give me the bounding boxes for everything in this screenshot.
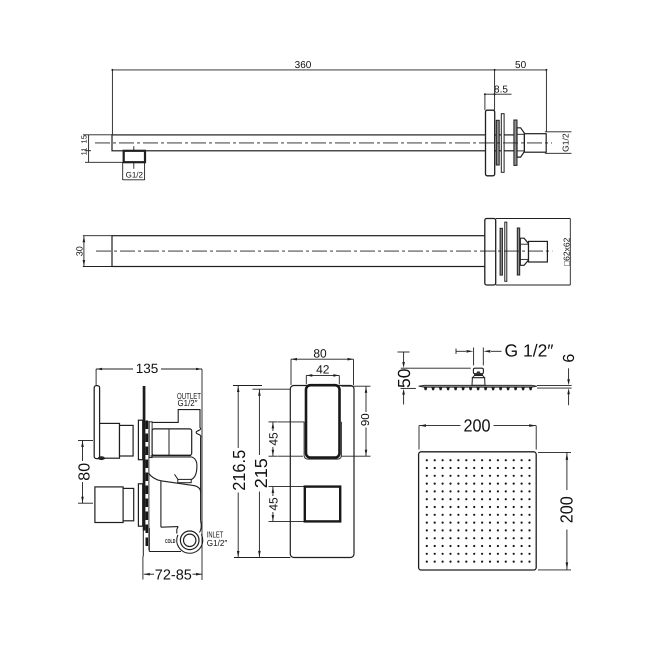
svg-text:200: 200 [464, 415, 491, 435]
svg-text:72-85: 72-85 [155, 567, 192, 583]
svg-text:G1/2″: G1/2″ [178, 398, 198, 408]
svg-text:90: 90 [360, 413, 372, 426]
svg-text:50: 50 [394, 368, 414, 388]
svg-text:216.5: 216.5 [229, 450, 249, 491]
svg-text:G1/2: G1/2 [126, 171, 144, 180]
svg-text:G1/2: G1/2 [561, 133, 571, 152]
svg-text:□62x62: □62x62 [561, 237, 571, 266]
svg-text:G 1/2″: G 1/2″ [505, 340, 554, 360]
svg-text:42: 42 [316, 363, 330, 377]
svg-text:80: 80 [76, 463, 93, 481]
svg-text:15: 15 [80, 135, 89, 143]
svg-text:COLD: COLD [165, 539, 175, 545]
svg-text:11: 11 [80, 148, 89, 156]
svg-text:G1/2″: G1/2″ [207, 538, 228, 548]
svg-text:30: 30 [75, 246, 85, 256]
svg-text:135: 135 [136, 361, 159, 376]
svg-text:215: 215 [251, 458, 271, 488]
svg-text:45: 45 [266, 497, 280, 511]
svg-text:200: 200 [557, 496, 577, 523]
svg-text:360: 360 [295, 60, 312, 71]
svg-text:50: 50 [515, 60, 527, 71]
svg-text:45: 45 [266, 432, 280, 446]
svg-text:8.5: 8.5 [494, 84, 508, 95]
svg-text:80: 80 [313, 346, 327, 360]
svg-text:6: 6 [561, 354, 578, 363]
